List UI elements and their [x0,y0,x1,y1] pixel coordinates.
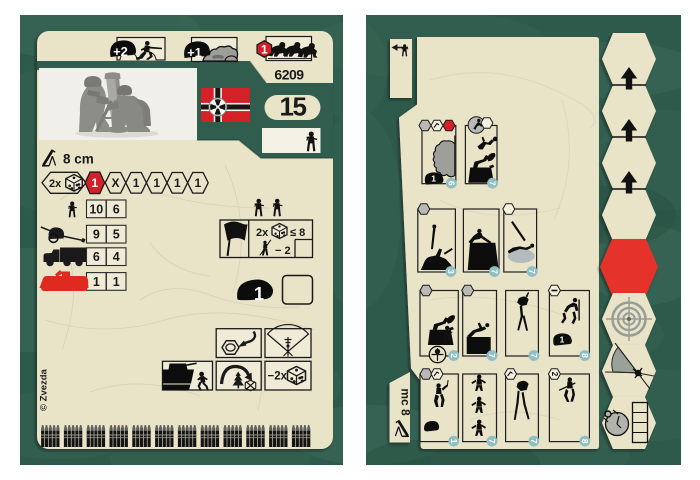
svg-text:7: 7 [487,353,497,358]
svg-text:© Zvezda: © Zvezda [39,368,50,411]
svg-text:15: 15 [280,92,307,122]
svg-text:1: 1 [431,174,436,184]
svg-text:6: 6 [113,202,120,216]
svg-text:9: 9 [93,228,100,242]
svg-text:1: 1 [261,42,268,56]
svg-text:6209: 6209 [274,67,304,83]
svg-text:− 2: − 2 [275,245,291,257]
svg-text:5: 5 [113,228,120,242]
svg-text:3: 3 [446,269,456,274]
svg-text:1: 1 [254,284,264,304]
svg-text:7: 7 [529,353,539,358]
svg-text:7: 7 [529,439,539,444]
svg-text:7: 7 [487,439,497,444]
svg-text:7: 7 [488,181,498,186]
svg-text:mc 8: mc 8 [399,388,413,416]
svg-text:2: 2 [550,372,559,377]
svg-text:+2: +2 [113,44,128,59]
svg-text:8 cm: 8 cm [63,152,94,167]
svg-text:1: 1 [153,176,160,190]
svg-text:8: 8 [580,439,590,444]
svg-text:≤ 8: ≤ 8 [290,227,305,239]
svg-text:1: 1 [174,176,181,190]
svg-text:2: 2 [449,353,459,358]
svg-text:1: 1 [195,176,202,190]
svg-text:1: 1 [92,176,99,190]
svg-text:1: 1 [113,275,120,289]
svg-text:+1: +1 [187,45,202,60]
svg-text:−2x: −2x [268,371,288,383]
svg-text:1: 1 [93,275,100,289]
svg-text:1: 1 [449,439,459,444]
svg-text:6: 6 [93,250,100,264]
svg-text:8: 8 [580,353,590,358]
svg-text:2x: 2x [49,178,62,190]
svg-text:1: 1 [133,176,140,190]
svg-text:6: 6 [446,181,456,186]
svg-text:10: 10 [89,202,103,216]
svg-text:2x: 2x [256,227,269,239]
svg-text:7: 7 [527,269,537,274]
svg-text:X: X [111,176,119,190]
svg-text:4: 4 [113,250,120,264]
svg-text:1: 1 [560,335,565,345]
svg-text:7: 7 [490,269,500,274]
